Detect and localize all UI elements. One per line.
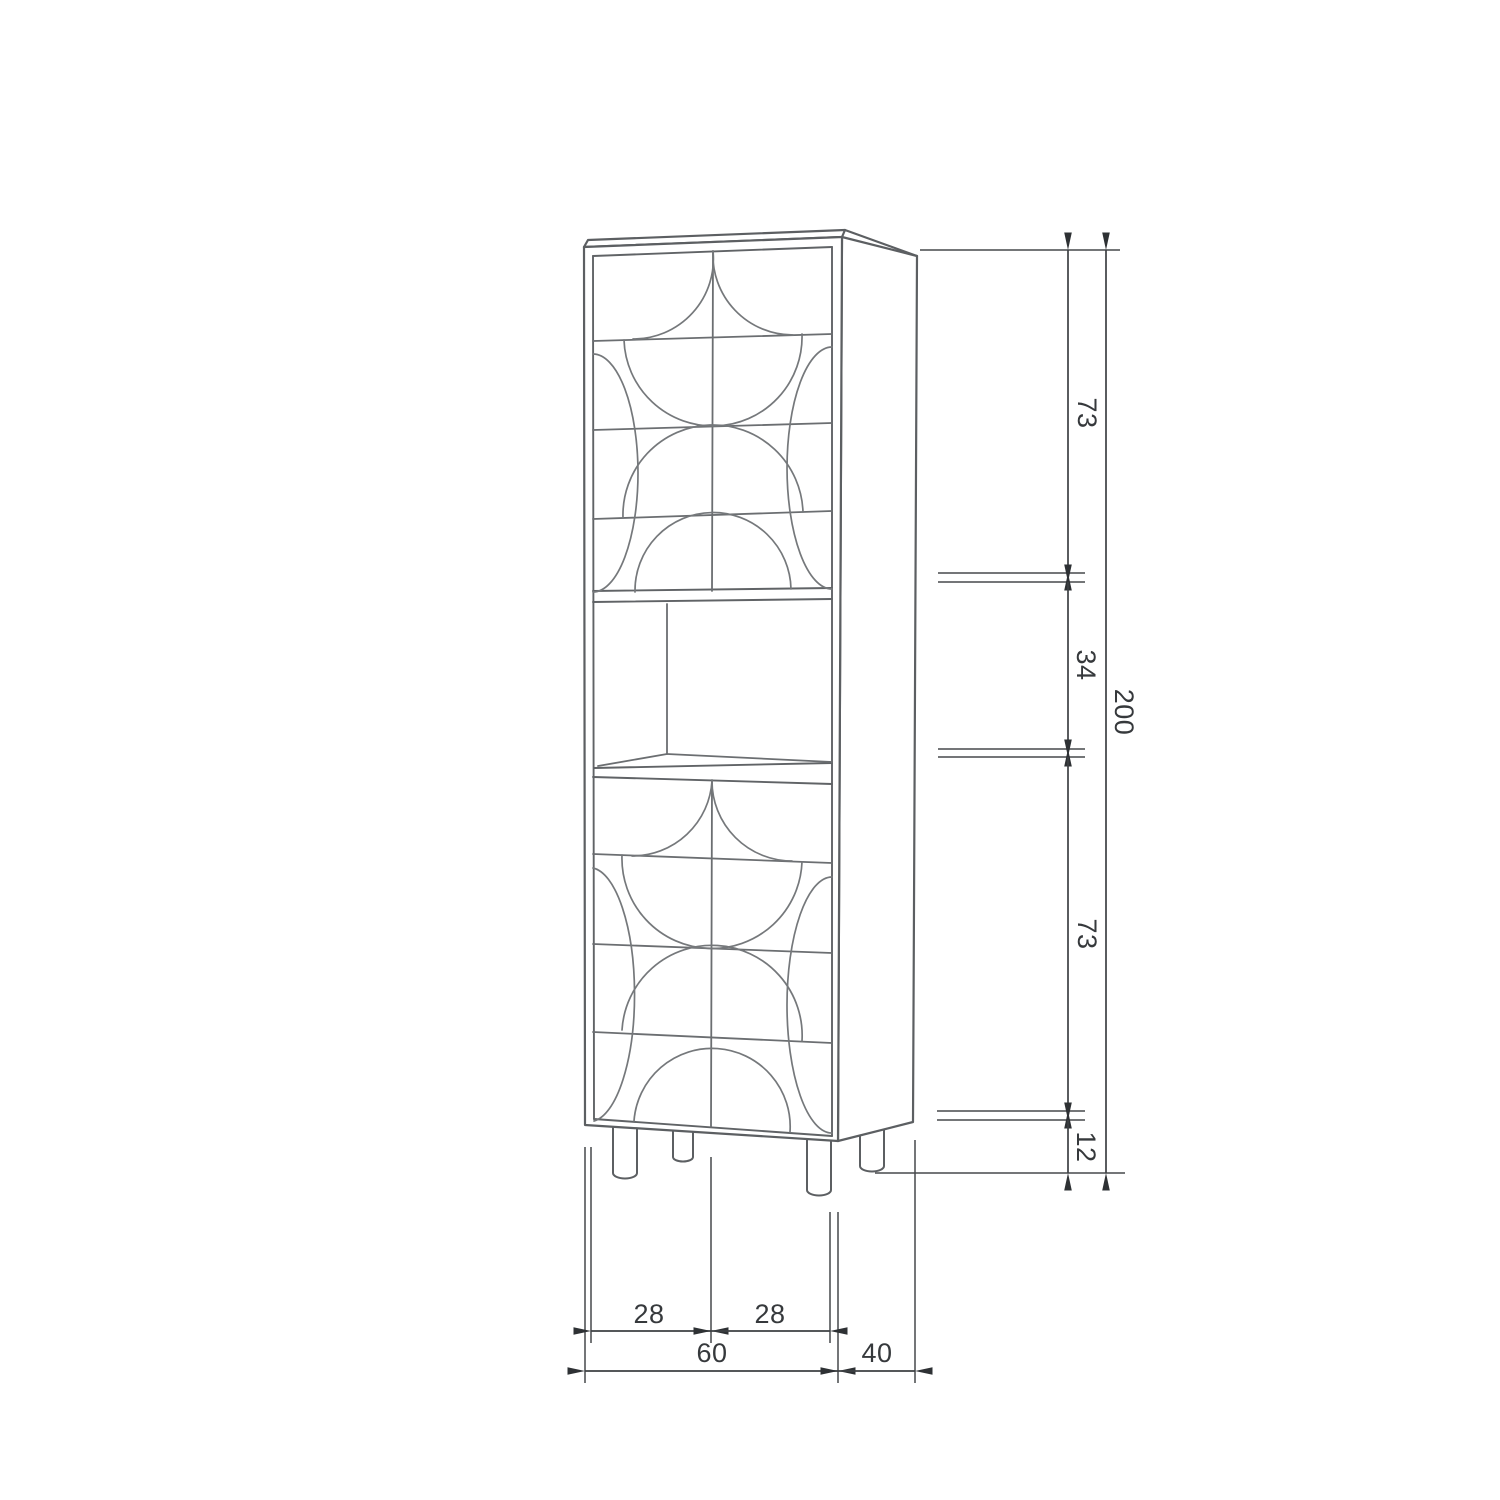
dim-label-shelf-height: 34	[1071, 649, 1101, 680]
dim-label-total-depth: 40	[861, 1338, 892, 1368]
front-frame-left	[593, 256, 594, 1119]
dim-label-total-height: 200	[1109, 689, 1139, 736]
cabinet-side-face	[838, 237, 917, 1141]
bottom-door-center-divider	[711, 780, 712, 1127]
leg-front-left	[613, 1124, 637, 1179]
dim-label-top-door-height: 73	[1072, 397, 1102, 428]
dim-label-leg-height: 12	[1071, 1131, 1101, 1162]
cabinet-body	[584, 230, 917, 1196]
dim-label-bottom-door-height: 73	[1072, 918, 1102, 949]
furniture-dimension-drawing: 73 34 73 12 200 28 28 60 40	[0, 0, 1500, 1500]
dim-label-door-left-width: 28	[633, 1299, 664, 1329]
dim-label-total-width: 60	[696, 1338, 727, 1368]
top-door-center-divider	[712, 251, 713, 591]
dim-label-door-right-width: 28	[754, 1299, 785, 1329]
leg-front-right	[807, 1136, 831, 1196]
technical-drawing-page: 73 34 73 12 200 28 28 60 40	[0, 0, 1500, 1500]
leg-back-left	[673, 1131, 693, 1162]
